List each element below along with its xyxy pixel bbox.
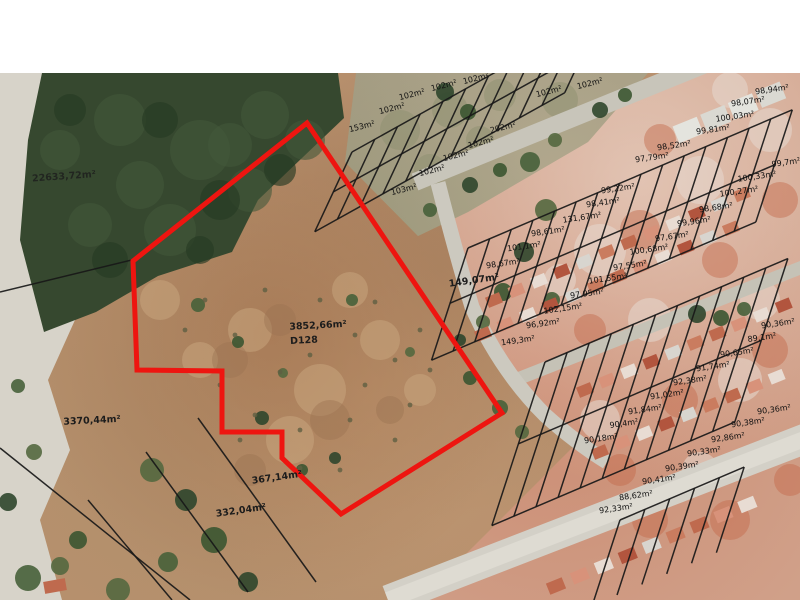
top-white-margin [0, 0, 800, 73]
map-overlay [0, 0, 800, 600]
satellite-map[interactable]: 22633,72m²3370,44m²3852,66m²D128367,14m²… [0, 0, 800, 600]
